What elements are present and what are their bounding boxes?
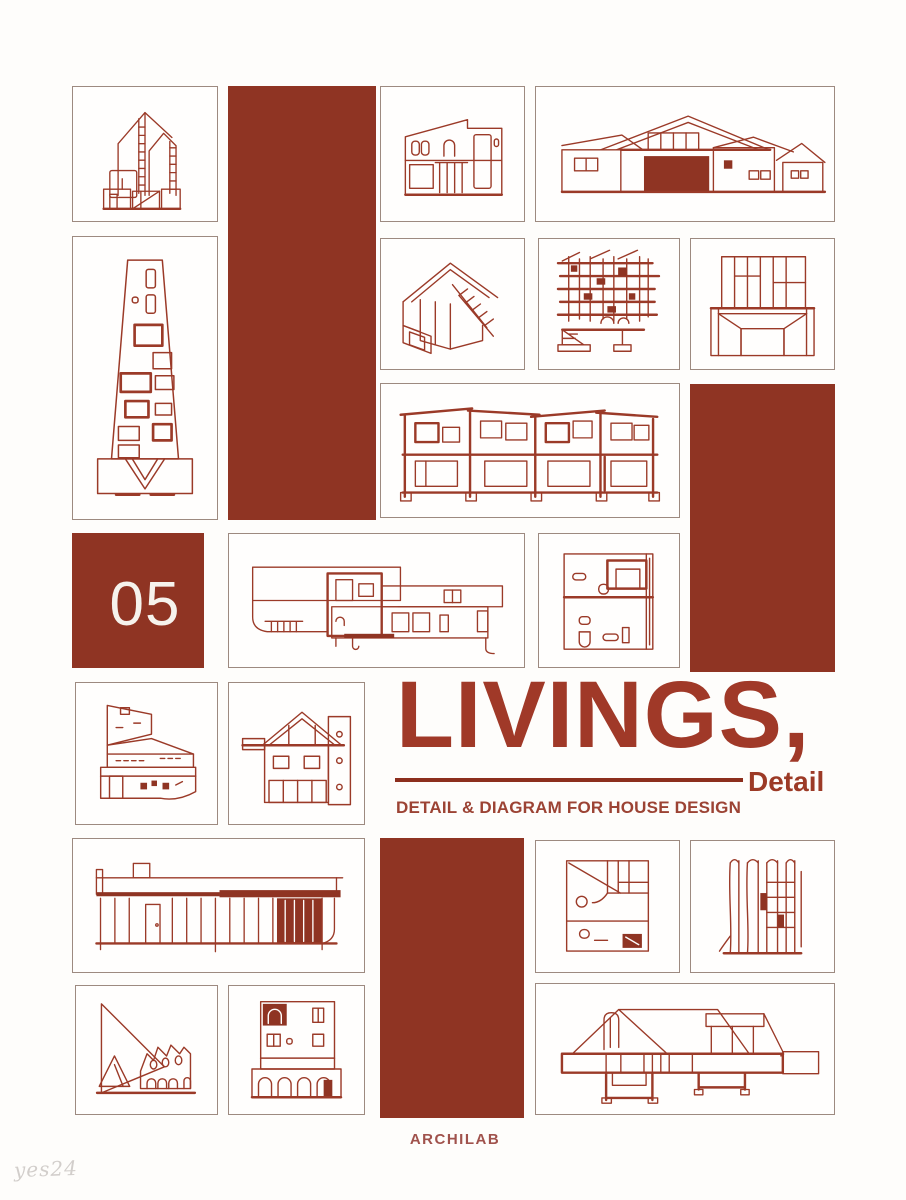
modern-villa-section-icon — [236, 541, 517, 660]
drawing-cell-long-section — [380, 383, 680, 518]
publisher-name: ARCHILAB — [355, 1131, 555, 1148]
red-block-top-left-column — [228, 86, 376, 520]
wall-section-detail-icon — [698, 848, 827, 965]
drawing-cell-long-elevation — [72, 838, 365, 973]
drawing-cell-angular-building — [75, 682, 218, 825]
narrow-house-elevation-icon — [80, 94, 210, 214]
drawing-cell-plan-circle — [535, 840, 680, 973]
house-section-axonometric-icon — [388, 246, 517, 362]
drawing-cell-axon-section — [380, 238, 525, 370]
long-building-elevation-icon — [80, 846, 357, 965]
drawing-cell-brick-section — [535, 983, 835, 1115]
book-title: LIVINGS, — [396, 668, 856, 763]
drawing-cell-narrow-house — [72, 86, 218, 222]
book-cover: 05 — [0, 0, 906, 1200]
floor-plan-detail-icon — [546, 541, 672, 660]
drawing-cell-tower — [72, 236, 218, 520]
drawing-cell-modern-house — [380, 86, 525, 222]
panel-facade-detail-icon — [698, 246, 827, 362]
plan-circle-detail-icon — [543, 848, 672, 965]
angular-building-elevation-icon — [83, 690, 210, 817]
brick-roof-section-icon — [543, 991, 827, 1107]
arched-facade-elevation-icon — [236, 993, 357, 1107]
drawing-cell-modern-villa — [228, 533, 525, 668]
two-story-long-section-icon — [388, 391, 672, 510]
bookstore-watermark: yes24 — [14, 1156, 79, 1182]
volume-number-badge: 05 — [72, 533, 204, 668]
drawing-cell-framing — [538, 238, 680, 370]
drawing-cell-cross-section — [228, 682, 365, 825]
timber-framing-section-icon — [546, 246, 672, 362]
book-subtitle: DETAIL & DIAGRAM FOR HOUSE DESIGN — [396, 798, 816, 818]
red-block-right-column — [690, 384, 835, 672]
red-block-bottom-center-column — [380, 838, 524, 1118]
house-cross-section-icon — [236, 690, 357, 817]
drawing-cell-arched-facade — [228, 985, 365, 1115]
tower-elevation-icon — [80, 244, 210, 512]
modern-house-elevation-icon — [388, 94, 517, 214]
drawing-cell-ranch-house — [535, 86, 835, 222]
drawing-cell-panel-facade — [690, 238, 835, 370]
ranch-house-elevation-icon — [543, 94, 827, 214]
drawing-cell-plan-detail — [538, 533, 680, 668]
drawing-cell-wall-section — [690, 840, 835, 973]
title-rule-line — [395, 778, 743, 782]
drawing-cell-triangle-village — [75, 985, 218, 1115]
volume-number: 05 — [110, 569, 181, 640]
triangle-sail-building-icon — [83, 993, 210, 1107]
book-title-accent: Detail — [748, 767, 868, 798]
